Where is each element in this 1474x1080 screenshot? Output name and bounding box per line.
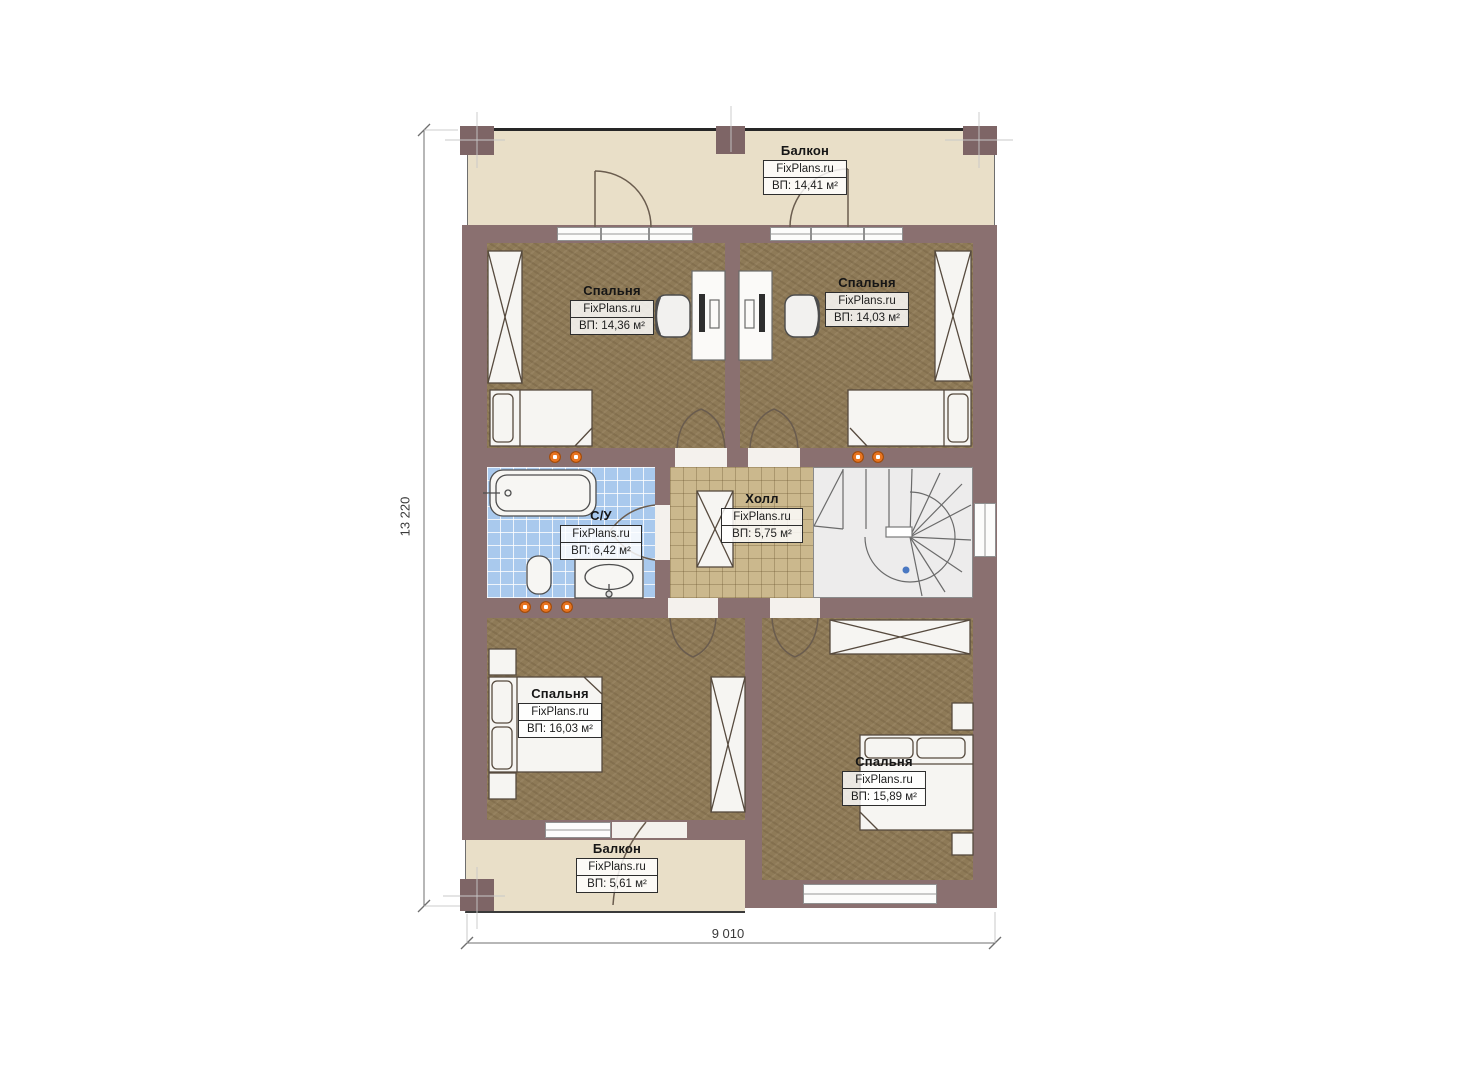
room-name: Балкон	[576, 841, 658, 856]
wall-left-exterior	[462, 225, 487, 840]
room-label-bedroom-bottom-right: Спальня FixPlans.ru ВП: 15,89 м²	[842, 754, 926, 806]
room-name: Спальня	[518, 686, 602, 701]
brand-watermark: FixPlans.ru	[577, 859, 657, 875]
room-label-balcony-top: Балкон FixPlans.ru ВП: 14,41 м²	[763, 143, 847, 195]
floor-plan-page: { "plan": { "brand": "FixPlans.ru", "dim…	[0, 0, 1474, 1080]
room-name: Холл	[721, 491, 803, 506]
window-bottom-left-bedroom	[545, 822, 611, 838]
room-name: Спальня	[842, 754, 926, 769]
room-area: ВП: 5,75 м²	[722, 525, 802, 542]
socket-marker	[852, 451, 864, 463]
room-name: С/У	[560, 508, 642, 523]
room-area: ВП: 16,03 м²	[519, 720, 601, 737]
window-top-left-bedroom	[557, 227, 693, 241]
brand-watermark: FixPlans.ru	[843, 772, 925, 788]
socket-marker	[570, 451, 582, 463]
door-opening-bathroom	[655, 505, 670, 560]
room-info-box: FixPlans.ru ВП: 5,75 м²	[721, 508, 803, 543]
brand-watermark: FixPlans.ru	[764, 161, 846, 177]
door-opening-hall-to-bedroom-bl	[668, 598, 718, 618]
brand-watermark: FixPlans.ru	[561, 526, 641, 542]
room-area: ВП: 15,89 м²	[843, 788, 925, 805]
door-opening-balcony-bottom	[612, 822, 687, 838]
pillar-top-middle	[716, 126, 745, 154]
room-label-bedroom-bottom-left: Спальня FixPlans.ru ВП: 16,03 м²	[518, 686, 602, 738]
room-area: ВП: 5,61 м²	[577, 875, 657, 892]
room-area: ВП: 14,41 м²	[764, 177, 846, 194]
wall-right-exterior	[973, 225, 997, 908]
room-info-box: FixPlans.ru ВП: 14,03 м²	[825, 292, 909, 327]
pillar-bottom-left	[460, 879, 494, 911]
room-info-box: FixPlans.ru ВП: 14,41 м²	[763, 160, 847, 195]
brand-watermark: FixPlans.ru	[722, 509, 802, 525]
room-info-box: FixPlans.ru ВП: 14,36 м²	[570, 300, 654, 335]
window-mullion	[810, 227, 812, 241]
pillar-top-right	[963, 126, 997, 155]
brand-watermark: FixPlans.ru	[571, 301, 653, 317]
door-opening-hall-to-bedroom-tl	[675, 448, 727, 467]
window-mullion	[600, 227, 602, 241]
room-label-bathroom: С/У FixPlans.ru ВП: 6,42 м²	[560, 508, 642, 560]
socket-marker	[872, 451, 884, 463]
window-mullion	[648, 227, 650, 241]
dimension-vertical-label: 13 220	[398, 477, 413, 557]
room-info-box: FixPlans.ru ВП: 5,61 м²	[576, 858, 658, 893]
bedroom-top-left-floor	[487, 243, 725, 448]
window-top-right-bedroom	[770, 227, 903, 241]
room-info-box: FixPlans.ru ВП: 16,03 м²	[518, 703, 602, 738]
room-label-hall: Холл FixPlans.ru ВП: 5,75 м²	[721, 491, 803, 543]
socket-marker	[519, 601, 531, 613]
socket-marker	[540, 601, 552, 613]
bedroom-top-right-floor	[740, 243, 973, 448]
door-opening-hall-to-bedroom-br	[770, 598, 820, 618]
wall-partition-bottom-bedrooms	[745, 618, 762, 908]
room-area: ВП: 14,03 м²	[826, 309, 908, 326]
wall-partition-top-bedrooms	[725, 243, 740, 448]
room-name: Балкон	[763, 143, 847, 158]
bedroom-bottom-right-floor	[762, 618, 973, 880]
room-label-balcony-bottom: Балкон FixPlans.ru ВП: 5,61 м²	[576, 841, 658, 893]
room-info-box: FixPlans.ru ВП: 15,89 м²	[842, 771, 926, 806]
pillar-top-left	[460, 126, 494, 155]
socket-marker	[549, 451, 561, 463]
room-label-bedroom-top-right: Спальня FixPlans.ru ВП: 14,03 м²	[825, 275, 909, 327]
room-info-box: FixPlans.ru ВП: 6,42 м²	[560, 525, 642, 560]
window-bottom-right-bedroom	[803, 884, 937, 904]
room-name: Спальня	[825, 275, 909, 290]
door-opening-hall-to-bedroom-tr	[748, 448, 800, 467]
brand-watermark: FixPlans.ru	[519, 704, 601, 720]
window-stairwell	[974, 503, 996, 557]
room-label-bedroom-top-left: Спальня FixPlans.ru ВП: 14,36 м²	[570, 283, 654, 335]
wall-middle-upper	[462, 448, 997, 467]
room-area: ВП: 6,42 м²	[561, 542, 641, 559]
stairwell-floor	[813, 467, 973, 598]
room-name: Спальня	[570, 283, 654, 298]
brand-watermark: FixPlans.ru	[826, 293, 908, 309]
window-mullion	[863, 227, 865, 241]
room-area: ВП: 14,36 м²	[571, 317, 653, 334]
socket-marker	[561, 601, 573, 613]
wall-top-exterior	[462, 225, 997, 243]
dimension-horizontal-label: 9 010	[688, 926, 768, 941]
